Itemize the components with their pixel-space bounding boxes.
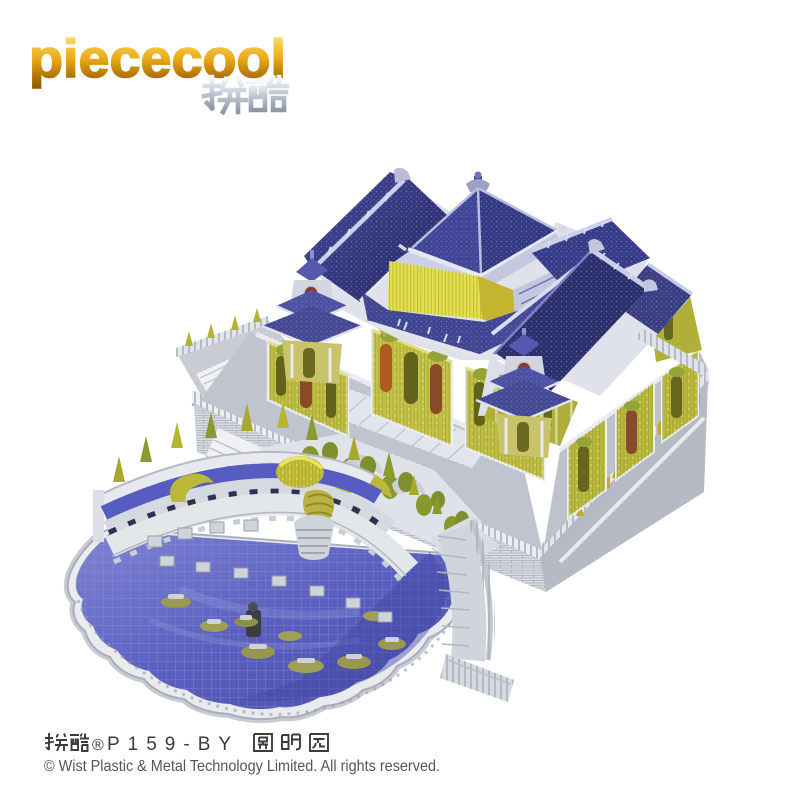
svg-text:© Wist Plastic & Metal Technol: © Wist Plastic & Metal Technology Limite… [44,758,440,775]
svg-text:®: ® [92,737,104,754]
svg-text:P159-BY: P159-BY [107,734,239,755]
